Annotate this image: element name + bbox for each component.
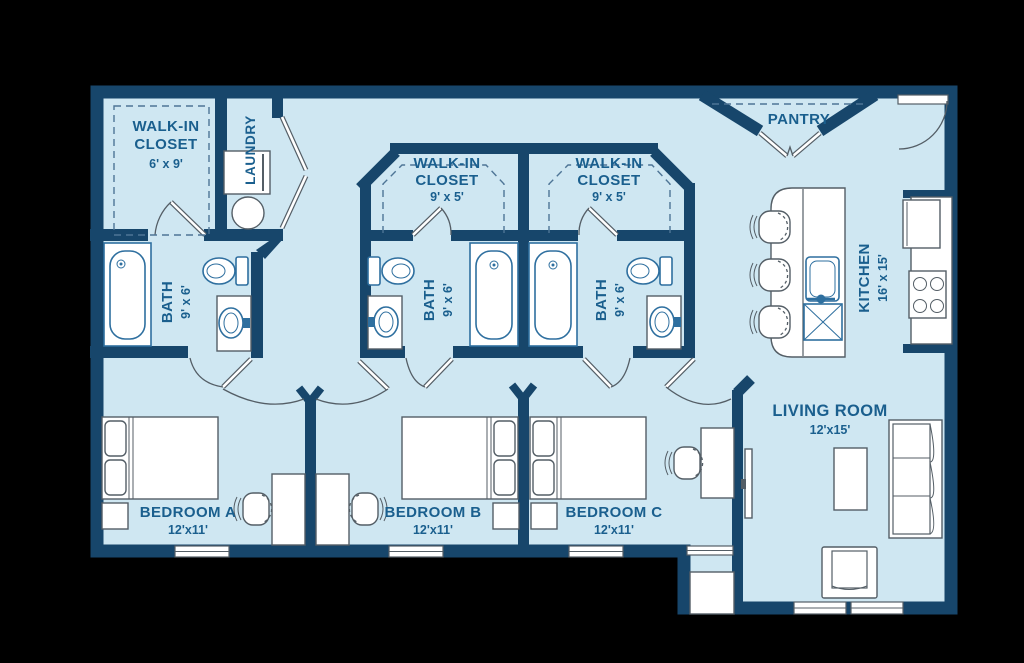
svg-text:CLOSET: CLOSET [415, 172, 478, 189]
kitchen-label: KITCHEN [856, 243, 873, 312]
closet-a-label: WALK-IN [133, 118, 200, 135]
laundry-basket [232, 197, 264, 229]
pillow [494, 460, 515, 495]
bathtub [104, 243, 151, 346]
bedroom-b-label: BEDROOM B [385, 504, 482, 521]
living-room-label: LIVING ROOM [772, 402, 887, 420]
dishwasher [804, 304, 842, 340]
bed [402, 417, 518, 499]
alcove-window [687, 546, 733, 555]
living-room-window-right [851, 602, 903, 614]
vanity-sink [647, 296, 681, 349]
svg-text:9' x 6': 9' x 6' [179, 285, 193, 319]
svg-text:9' x 6': 9' x 6' [441, 283, 455, 317]
pillow [494, 421, 515, 456]
vanity-sink [217, 296, 251, 351]
desk [272, 474, 305, 545]
armchair [822, 547, 877, 598]
alcove-storage-unit [690, 572, 734, 614]
bed [102, 417, 218, 499]
bathtub [529, 243, 577, 346]
toilet [627, 257, 672, 285]
bedroom-a-label: BEDROOM A [140, 504, 236, 521]
toilet [368, 257, 414, 285]
bedroom-a-window [175, 546, 229, 557]
svg-text:16' x 15': 16' x 15' [876, 254, 890, 302]
stove [909, 271, 946, 318]
svg-text:12'x11': 12'x11' [413, 523, 453, 537]
bedroom-b-window [389, 546, 443, 557]
nightstand [102, 503, 128, 529]
vanity-sink [368, 296, 402, 349]
bedroom-c-window [569, 546, 623, 557]
nightstand [531, 503, 557, 529]
laundry-label: LAUNDRY [243, 115, 258, 185]
coffee-table [834, 448, 867, 510]
svg-text:9' x 5': 9' x 5' [592, 190, 626, 204]
bedroom-c-label: BEDROOM C [566, 504, 663, 521]
nightstand [493, 503, 519, 529]
svg-text:CLOSET: CLOSET [134, 136, 197, 153]
svg-text:12'x15': 12'x15' [810, 423, 851, 437]
svg-text:CLOSET: CLOSET [577, 172, 640, 189]
pantry-label: PANTRY [768, 111, 830, 128]
pillow [533, 460, 554, 495]
bath-b-label: BATH [421, 279, 438, 321]
svg-text:12'x11': 12'x11' [168, 523, 208, 537]
floor-plan: WALK-IN CLOSET 6' x 9' LAUNDRY WALK-IN C… [0, 0, 1024, 663]
bathtub [470, 243, 518, 346]
living-room-window-left [794, 602, 846, 614]
bath-c-label: BATH [593, 279, 610, 321]
pillow [105, 421, 126, 456]
desk [316, 474, 349, 545]
pillow [533, 421, 554, 456]
svg-text:WALK-IN: WALK-IN [576, 155, 643, 172]
desk [701, 428, 734, 498]
svg-text:9' x 5': 9' x 5' [430, 190, 464, 204]
toilet [203, 257, 248, 285]
refrigerator [903, 200, 940, 248]
svg-text:WALK-IN: WALK-IN [414, 155, 481, 172]
pillow [105, 460, 126, 495]
closet-a-dims: 6' x 9' [149, 157, 183, 171]
svg-text:9' x 6': 9' x 6' [613, 283, 627, 317]
sofa [889, 420, 942, 538]
bed [530, 417, 646, 499]
kitchen-sink [806, 257, 839, 304]
bath-a-label: BATH [159, 281, 176, 323]
svg-text:12'x11': 12'x11' [594, 523, 634, 537]
